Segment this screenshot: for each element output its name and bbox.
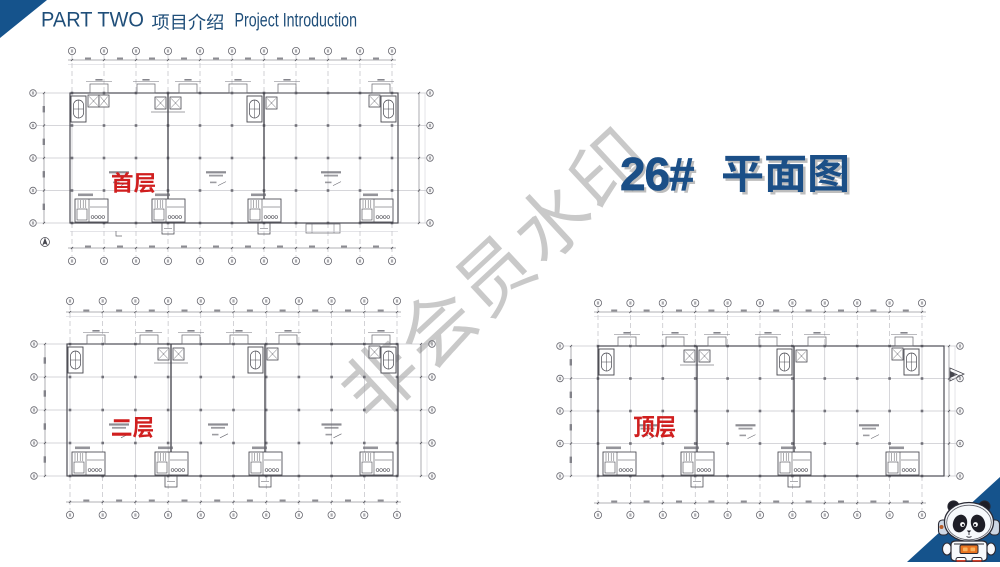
svg-text:PART TWO: PART TWO <box>41 9 144 32</box>
svg-text:Project Introduction: Project Introduction <box>235 11 358 32</box>
svg-text:26#: 26# <box>620 148 695 200</box>
